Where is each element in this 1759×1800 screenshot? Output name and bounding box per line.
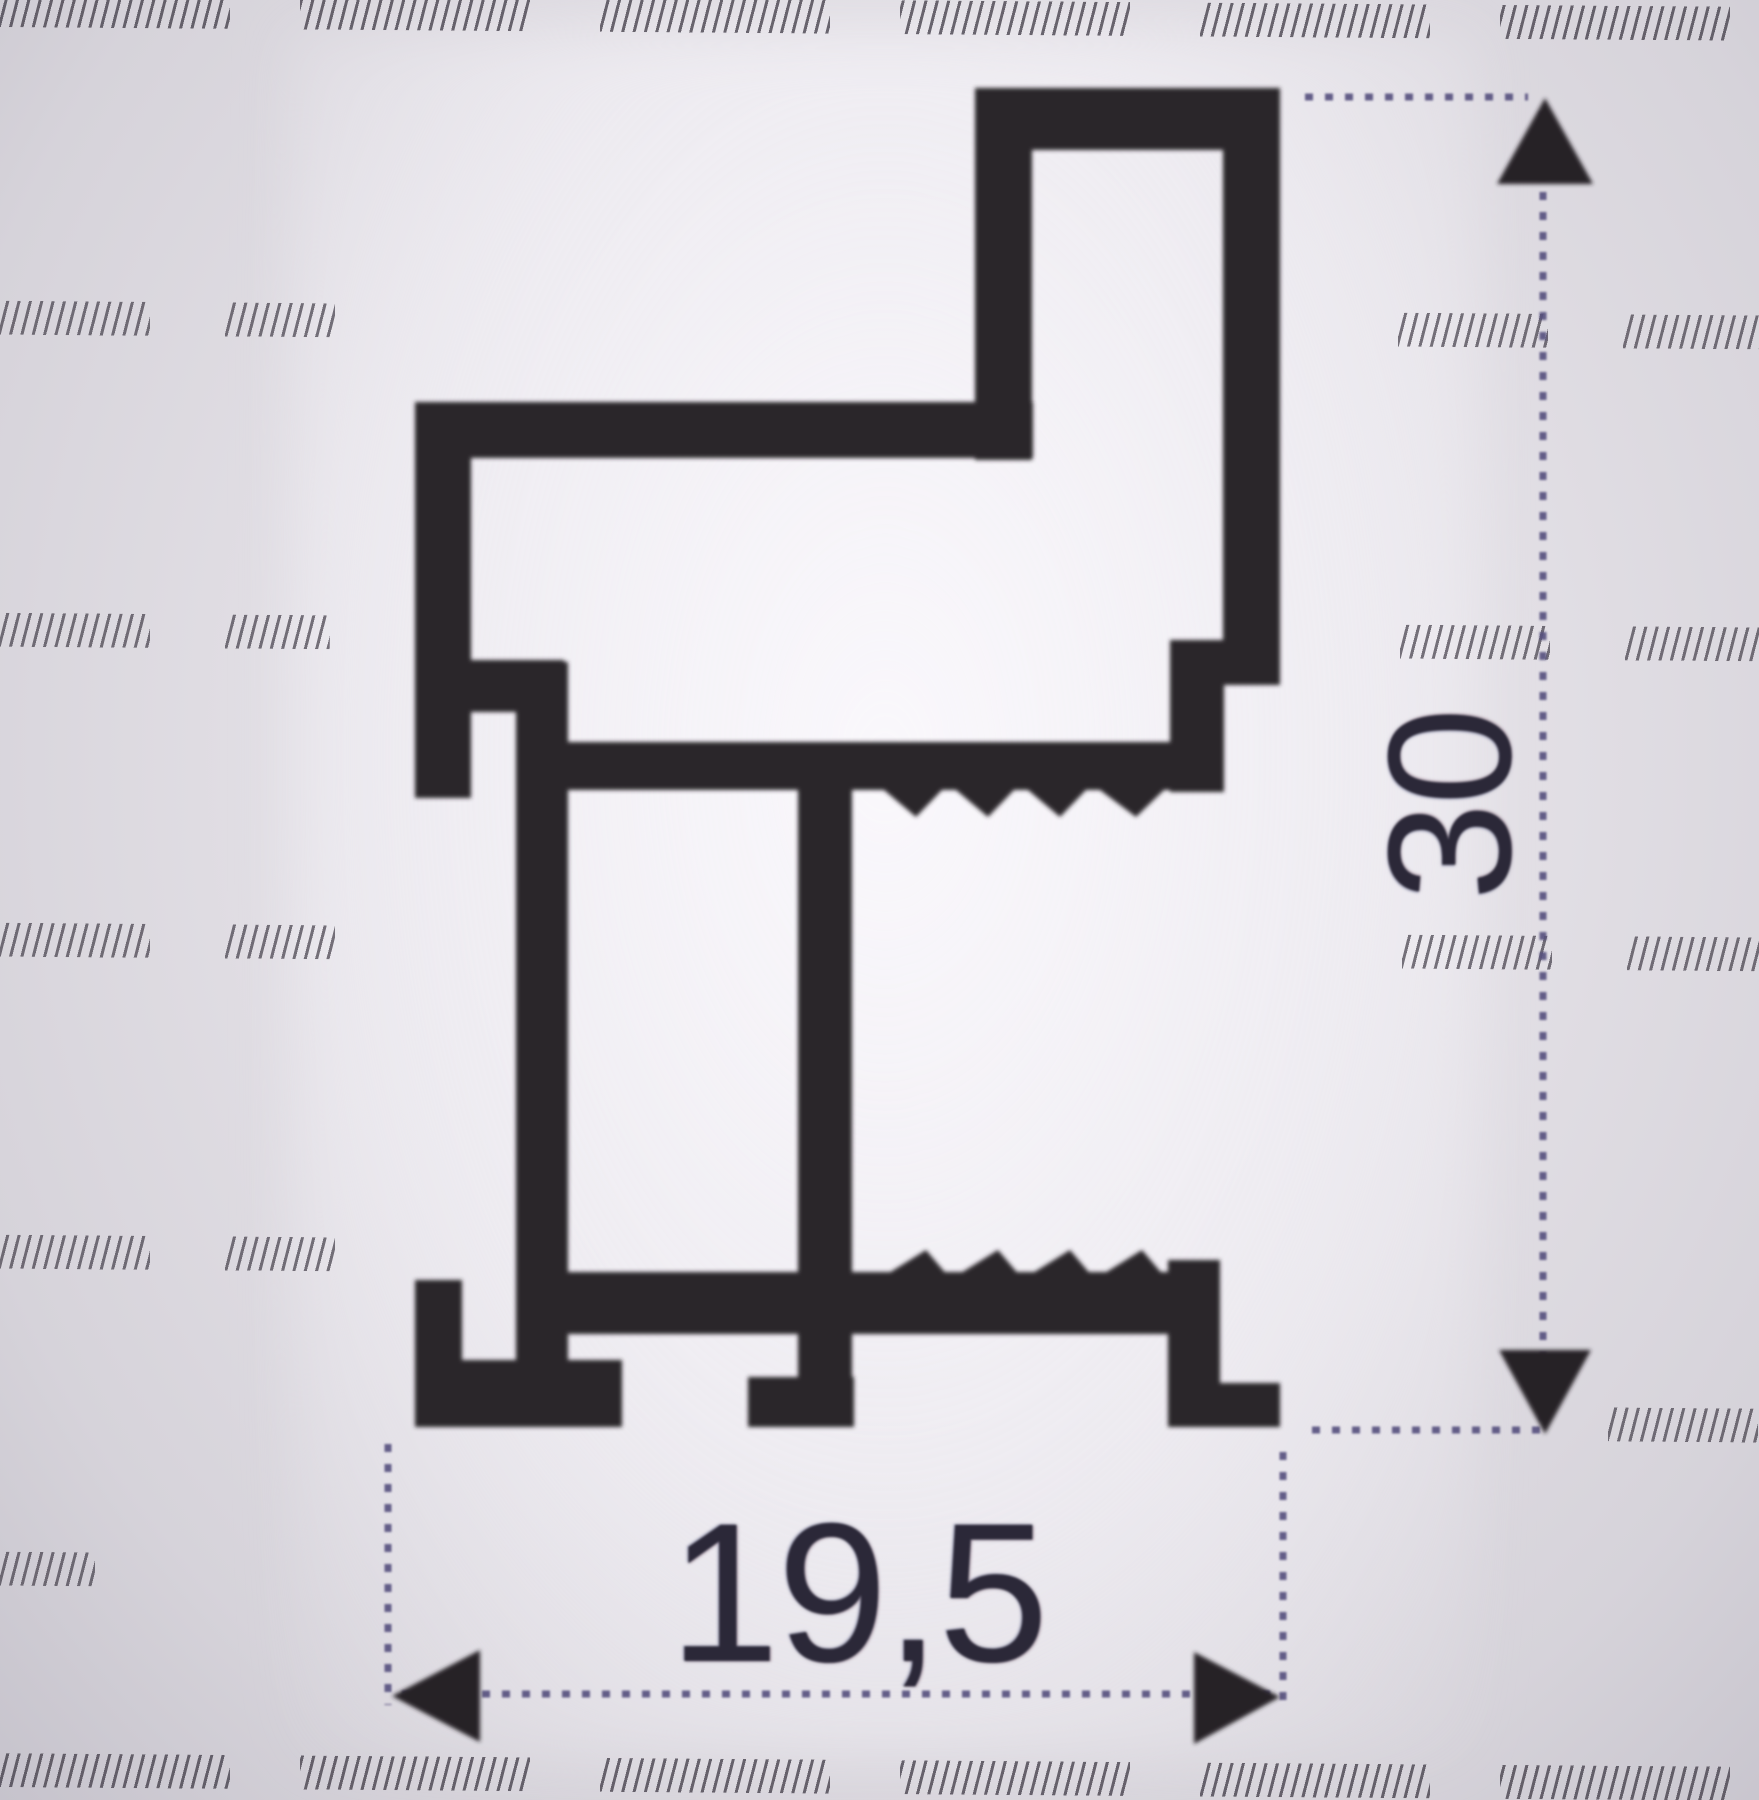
- profile-bottom-bar: [556, 1272, 1216, 1334]
- height-dimension-label: 30: [1350, 655, 1550, 955]
- profile-left-foot: [415, 1360, 622, 1427]
- profile-shape: [415, 88, 1280, 1427]
- height-arrow-up-icon: [1497, 98, 1593, 184]
- profile-serration-tooth: [956, 1250, 1020, 1276]
- width-arrow-left-icon: [392, 1650, 480, 1742]
- profile-table-bar: [548, 742, 1224, 790]
- profile-right-end-flange: [1218, 1383, 1280, 1427]
- profile-serration-tooth: [884, 1250, 948, 1276]
- profile-box-right-wall: [1223, 88, 1280, 685]
- profile-right-step: [1170, 640, 1224, 792]
- profile-serration-tooth: [1028, 790, 1086, 817]
- profile-serration-tooth: [956, 790, 1014, 817]
- profile-serration-tooth: [1100, 790, 1164, 817]
- profile-right-leg-foot: [748, 1377, 854, 1427]
- profile-shelf: [415, 402, 1033, 458]
- profile-serration-tooth: [884, 790, 942, 817]
- height-arrow-down-icon: [1499, 1350, 1591, 1434]
- profile-serration-tooth: [1028, 1250, 1092, 1276]
- width-arrow-right-icon: [1194, 1652, 1280, 1744]
- scanned-page: 30 19,5: [0, 0, 1759, 1800]
- profile-serration-tooth: [1100, 1250, 1164, 1276]
- profile-right-end-block: [1168, 1260, 1220, 1427]
- profile-left-wall: [415, 402, 471, 798]
- width-dimension-label: 19,5: [558, 1492, 1158, 1692]
